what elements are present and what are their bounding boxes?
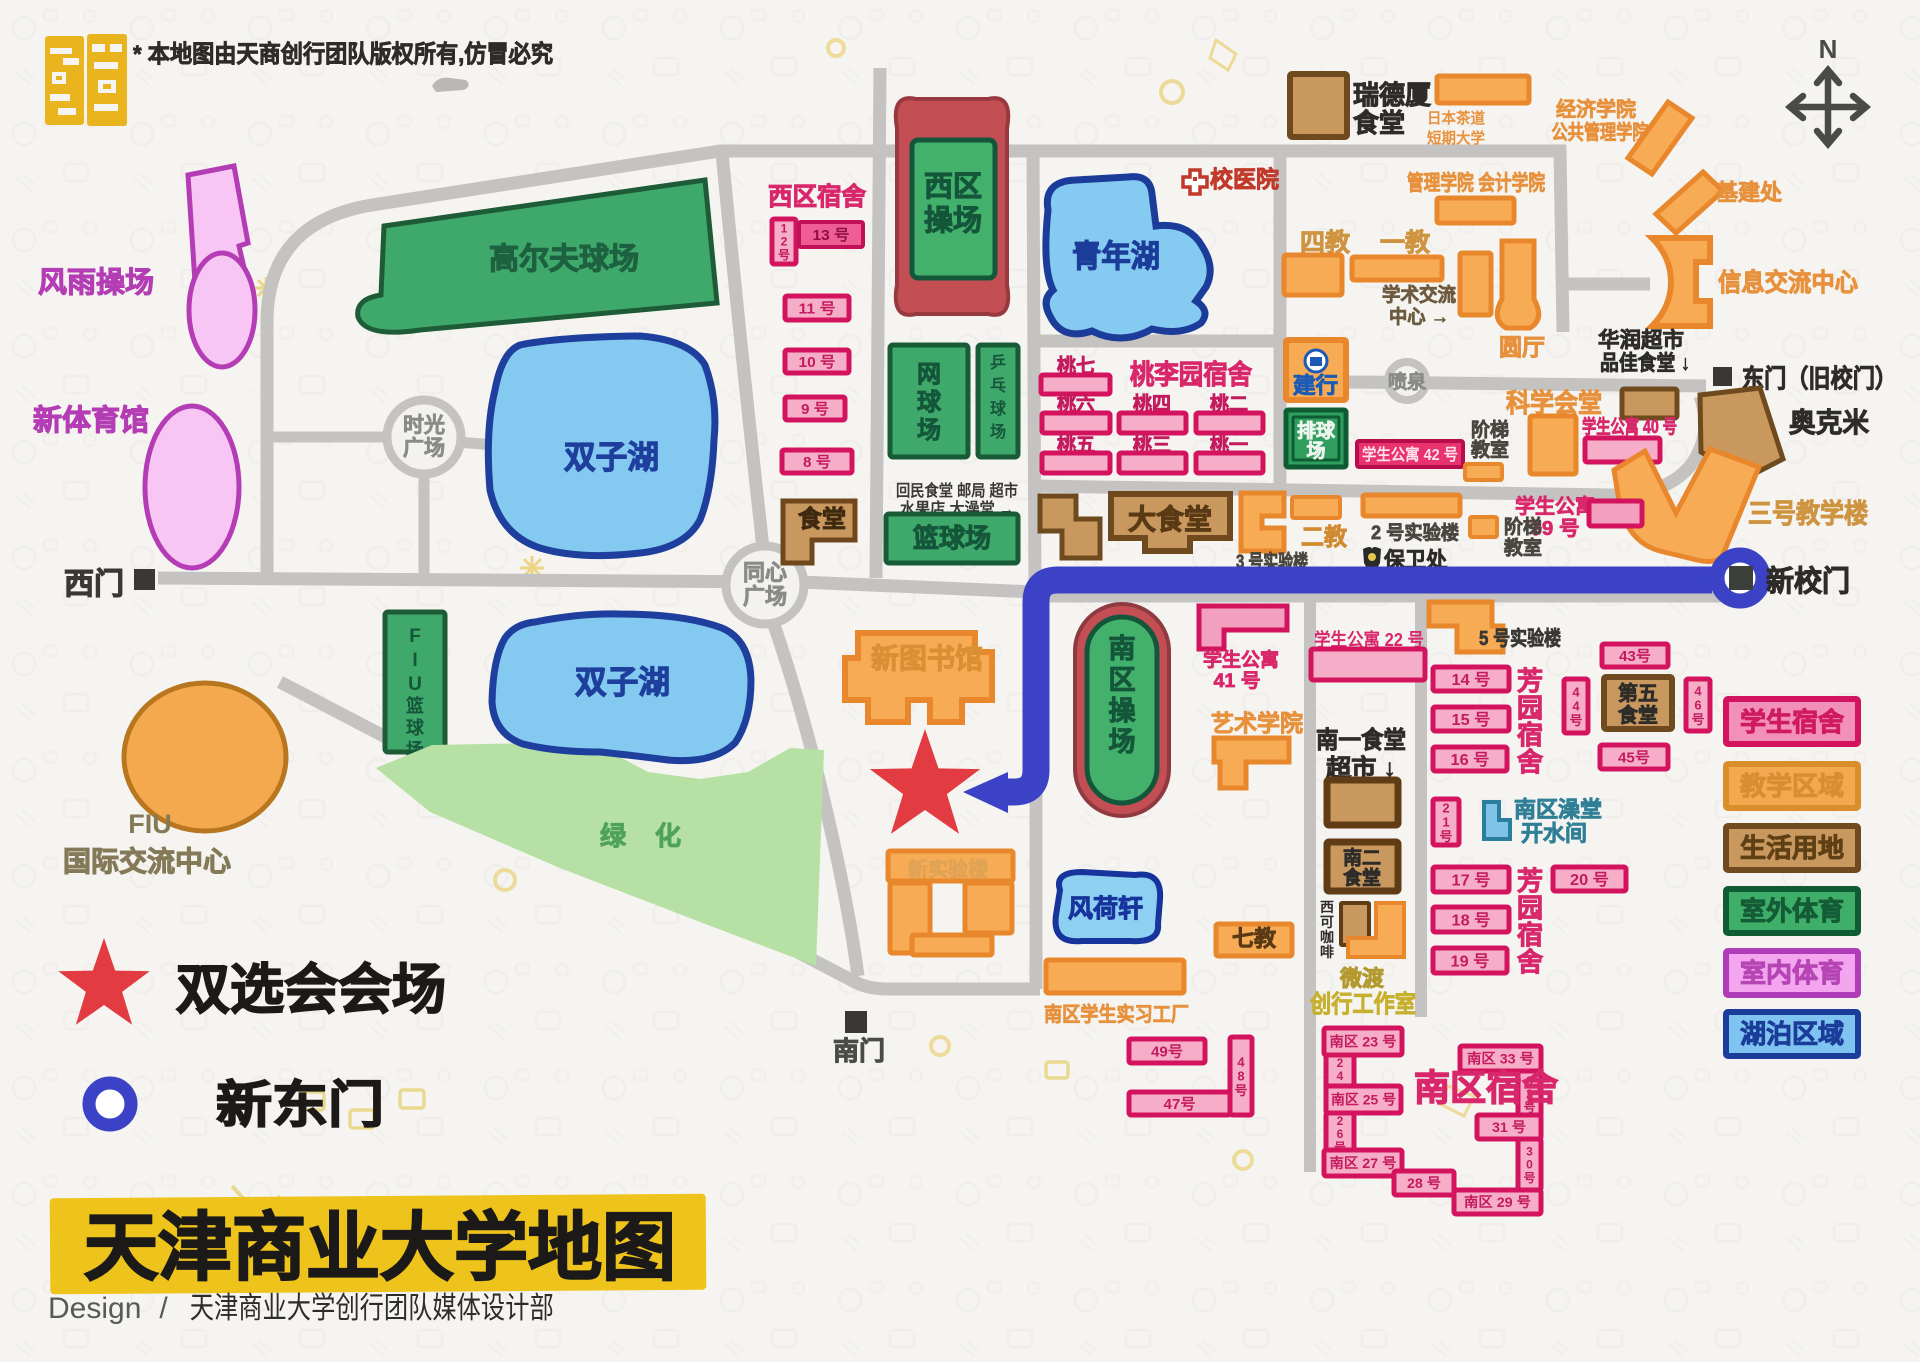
svg-text:4: 4 <box>1237 1054 1245 1069</box>
svg-text:5 号实验楼: 5 号实验楼 <box>1479 626 1561 650</box>
svg-text:日本茶道: 日本茶道 <box>1427 109 1485 127</box>
svg-text:球: 球 <box>990 399 1007 418</box>
svg-text:FIU: FIU <box>128 809 172 839</box>
svg-text:4: 4 <box>1694 683 1702 698</box>
svg-text:艺术学院: 艺术学院 <box>1211 710 1303 736</box>
svg-text:西门: 西门 <box>64 568 124 601</box>
svg-text:二教: 二教 <box>1301 523 1348 551</box>
svg-text:N: N <box>1819 34 1838 64</box>
svg-text:园: 园 <box>1517 693 1543 723</box>
svg-text:篮: 篮 <box>405 695 424 716</box>
svg-text:新校门: 新校门 <box>1766 564 1850 598</box>
svg-text:双子湖: 双子湖 <box>564 439 659 475</box>
svg-text:南一食堂: 南一食堂 <box>1316 726 1406 754</box>
svg-text:七教: 七教 <box>1232 926 1277 951</box>
svg-text:47号: 47号 <box>1164 1096 1196 1113</box>
svg-text:啡: 啡 <box>1320 944 1334 960</box>
svg-text:3: 3 <box>1526 1145 1533 1159</box>
svg-text:天津商业大学地图: 天津商业大学地图 <box>84 1206 676 1289</box>
svg-text:2: 2 <box>1442 800 1449 815</box>
svg-text:篮球场: 篮球场 <box>912 523 991 553</box>
svg-text:2: 2 <box>1337 1056 1344 1070</box>
svg-text:场: 场 <box>990 423 1006 441</box>
svg-text:11 号: 11 号 <box>799 300 836 317</box>
svg-text:乒: 乒 <box>990 353 1006 372</box>
svg-text:6: 6 <box>1337 1127 1344 1141</box>
svg-text:宿: 宿 <box>1517 720 1543 750</box>
svg-text:14 号: 14 号 <box>1452 671 1491 689</box>
svg-text:6: 6 <box>1694 698 1701 713</box>
svg-text:号: 号 <box>1439 829 1452 844</box>
svg-text:18 号: 18 号 <box>1452 911 1491 929</box>
svg-text:一教: 一教 <box>1380 229 1431 257</box>
svg-text:食堂: 食堂 <box>1353 108 1405 138</box>
svg-text:场: 场 <box>1109 727 1136 757</box>
svg-text:8 号: 8 号 <box>803 454 831 471</box>
svg-text:南区 23 号: 南区 23 号 <box>1330 1034 1397 1050</box>
svg-text:咖: 咖 <box>1320 929 1334 945</box>
svg-text:三号教学楼: 三号教学楼 <box>1748 498 1868 529</box>
svg-text:19 号: 19 号 <box>1451 952 1490 970</box>
svg-text:国际交流中心: 国际交流中心 <box>63 845 231 877</box>
svg-text:舍: 舍 <box>1517 747 1543 777</box>
svg-text:学术交流: 学术交流 <box>1382 283 1456 306</box>
svg-text:南区 25 号: 南区 25 号 <box>1331 1092 1396 1108</box>
svg-text:南: 南 <box>1109 634 1136 664</box>
svg-text:学生宿舍: 学生宿舍 <box>1740 707 1844 737</box>
svg-text:43号: 43号 <box>1619 648 1651 665</box>
svg-text:南区 29 号: 南区 29 号 <box>1464 1194 1531 1210</box>
svg-text:排球: 排球 <box>1297 419 1336 442</box>
svg-text:教室: 教室 <box>1471 438 1509 461</box>
svg-text:球: 球 <box>406 718 425 738</box>
svg-text:网: 网 <box>917 361 941 388</box>
svg-text:大食堂: 大食堂 <box>1128 503 1212 535</box>
svg-text:南二: 南二 <box>1343 847 1381 869</box>
svg-text:食堂: 食堂 <box>798 505 846 533</box>
svg-text:微渡: 微渡 <box>1339 966 1385 991</box>
svg-text:号: 号 <box>1691 712 1704 727</box>
svg-text:1: 1 <box>1442 815 1449 830</box>
svg-text:建行: 建行 <box>1293 373 1338 398</box>
svg-text:31 号: 31 号 <box>1492 1119 1526 1135</box>
svg-text:同心: 同心 <box>743 560 787 585</box>
svg-text:U: U <box>408 674 422 695</box>
svg-text:管理学院 会计学院: 管理学院 会计学院 <box>1407 171 1545 195</box>
svg-text:号: 号 <box>1523 1170 1535 1185</box>
svg-text:双选会会场: 双选会会场 <box>176 960 446 1020</box>
svg-text:学生公寓 42 号: 学生公寓 42 号 <box>1362 445 1458 464</box>
svg-text:新体育馆: 新体育馆 <box>33 403 149 437</box>
svg-text:45号: 45号 <box>1618 749 1650 766</box>
svg-text:东门（旧校门）: 东门（旧校门） <box>1742 364 1897 393</box>
svg-text:15 号: 15 号 <box>1452 711 1491 729</box>
svg-text:号: 号 <box>1569 713 1582 728</box>
svg-text:瑞德厦: 瑞德厦 <box>1353 80 1431 110</box>
svg-text:回民食堂 邮局 超市: 回民食堂 邮局 超市 <box>896 481 1018 500</box>
svg-text:场: 场 <box>1307 440 1326 462</box>
svg-text:Design/天津商业大学创行团队媒体设计部: Design/天津商业大学创行团队媒体设计部 <box>48 1292 554 1325</box>
svg-text:4: 4 <box>1337 1069 1344 1083</box>
svg-text:室外体育: 室外体育 <box>1740 896 1844 926</box>
svg-text:西: 西 <box>1320 899 1334 915</box>
svg-text:操: 操 <box>1109 696 1136 726</box>
svg-text:风雨操场: 风雨操场 <box>38 266 154 299</box>
svg-text:圆厅: 圆厅 <box>1499 334 1545 360</box>
svg-text:可: 可 <box>1320 914 1334 930</box>
svg-text:中心 →: 中心 → <box>1389 305 1449 328</box>
svg-text:2 号实验楼: 2 号实验楼 <box>1371 521 1459 544</box>
svg-text:教学区域: 教学区域 <box>1740 771 1844 801</box>
svg-text:2: 2 <box>1337 1114 1344 1128</box>
svg-text:开水间: 开水间 <box>1521 821 1587 846</box>
svg-text:化: 化 <box>655 821 681 851</box>
svg-text:南区澡堂: 南区澡堂 <box>1514 797 1602 822</box>
svg-text:双子湖: 双子湖 <box>575 664 670 700</box>
svg-text:I: I <box>412 650 417 671</box>
svg-text:16 号: 16 号 <box>1451 751 1490 769</box>
svg-text:创行工作室: 创行工作室 <box>1309 990 1416 1018</box>
svg-text:品佳食堂 ↓: 品佳食堂 ↓ <box>1600 351 1690 375</box>
svg-text:生活用地: 生活用地 <box>1740 833 1844 863</box>
svg-text:西区: 西区 <box>924 171 982 203</box>
svg-text:20 号: 20 号 <box>1570 871 1609 889</box>
svg-text:校医院: 校医院 <box>1210 166 1279 192</box>
svg-text:49号: 49号 <box>1151 1043 1183 1060</box>
svg-text:17 号: 17 号 <box>1452 871 1491 889</box>
svg-text:F: F <box>409 626 421 647</box>
svg-text:阶梯: 阶梯 <box>1471 418 1509 441</box>
svg-text:第五: 第五 <box>1618 681 1658 705</box>
svg-text:高尔夫球场: 高尔夫球场 <box>489 243 639 276</box>
svg-text:乓: 乓 <box>990 376 1006 395</box>
svg-text:青年湖: 青年湖 <box>1072 239 1160 274</box>
svg-text:9 号: 9 号 <box>801 401 829 418</box>
svg-text:西区宿舍: 西区宿舍 <box>768 182 866 211</box>
svg-text:南门: 南门 <box>833 1036 885 1066</box>
svg-text:园: 园 <box>1517 893 1543 923</box>
svg-text:喷泉: 喷泉 <box>1388 370 1427 393</box>
svg-text:28 号: 28 号 <box>1407 1175 1441 1191</box>
svg-text:经济学院: 经济学院 <box>1556 97 1636 121</box>
svg-text:学生公寓: 学生公寓 <box>1515 494 1595 518</box>
svg-text:号: 号 <box>778 247 790 262</box>
svg-text:绿: 绿 <box>600 821 627 851</box>
svg-text:华润超市: 华润超市 <box>1598 328 1684 352</box>
svg-text:基建处: 基建处 <box>1716 180 1782 205</box>
svg-text:信息交流中心: 信息交流中心 <box>1718 268 1858 297</box>
svg-text:* 本地图由天商创行团队版权所有,仿冒必究: * 本地图由天商创行团队版权所有,仿冒必究 <box>133 40 553 68</box>
svg-text:室内体育: 室内体育 <box>1740 958 1844 988</box>
svg-text:食堂: 食堂 <box>1343 866 1381 889</box>
svg-text:新图书馆: 新图书馆 <box>871 642 983 674</box>
svg-text:区: 区 <box>1109 665 1136 695</box>
svg-text:奥克米: 奥克米 <box>1789 407 1869 438</box>
svg-text:时光: 时光 <box>403 414 445 437</box>
svg-text:桃李园宿舍: 桃李园宿舍 <box>1130 359 1253 390</box>
svg-text:教室: 教室 <box>1504 536 1542 559</box>
svg-text:南区宿舍: 南区宿舍 <box>1414 1067 1558 1108</box>
svg-text:操场: 操场 <box>924 204 982 237</box>
svg-text:41 号: 41 号 <box>1214 670 1261 692</box>
svg-text:球: 球 <box>917 389 942 416</box>
svg-text:13 号: 13 号 <box>813 227 850 244</box>
svg-text:0: 0 <box>1526 1158 1533 1172</box>
svg-text:宿: 宿 <box>1517 920 1543 950</box>
svg-text:广场: 广场 <box>403 436 445 460</box>
svg-text:4: 4 <box>1572 699 1580 714</box>
svg-text:10 号: 10 号 <box>799 354 836 371</box>
svg-text:2: 2 <box>781 235 788 249</box>
svg-text:号: 号 <box>1234 1083 1247 1098</box>
svg-text:芳: 芳 <box>1517 666 1543 696</box>
svg-text:学生公寓: 学生公寓 <box>1203 648 1279 671</box>
svg-text:学生公寓 40 号: 学生公寓 40 号 <box>1582 415 1677 438</box>
svg-text:1: 1 <box>781 222 788 236</box>
svg-text:新实验楼: 新实验楼 <box>908 857 988 881</box>
svg-text:南区 33 号: 南区 33 号 <box>1467 1051 1534 1067</box>
svg-text:食堂: 食堂 <box>1618 703 1658 727</box>
svg-text:风荷轩: 风荷轩 <box>1068 895 1143 923</box>
svg-text:4: 4 <box>1572 684 1580 699</box>
svg-text:阶梯: 阶梯 <box>1504 515 1542 538</box>
svg-text:舍: 舍 <box>1517 947 1543 977</box>
svg-text:湖泊区域: 湖泊区域 <box>1740 1019 1844 1049</box>
svg-text:场: 场 <box>917 417 941 444</box>
svg-text:芳: 芳 <box>1517 866 1543 896</box>
svg-text:南区学生实习工厂: 南区学生实习工厂 <box>1044 1002 1189 1026</box>
svg-text:8: 8 <box>1237 1069 1244 1084</box>
svg-text:短期大学: 短期大学 <box>1427 129 1485 147</box>
svg-text:南区 27 号: 南区 27 号 <box>1330 1155 1397 1171</box>
svg-text:新东门: 新东门 <box>216 1077 384 1133</box>
svg-text:广场: 广场 <box>743 584 787 609</box>
svg-text:公共管理学院: 公共管理学院 <box>1552 120 1649 144</box>
